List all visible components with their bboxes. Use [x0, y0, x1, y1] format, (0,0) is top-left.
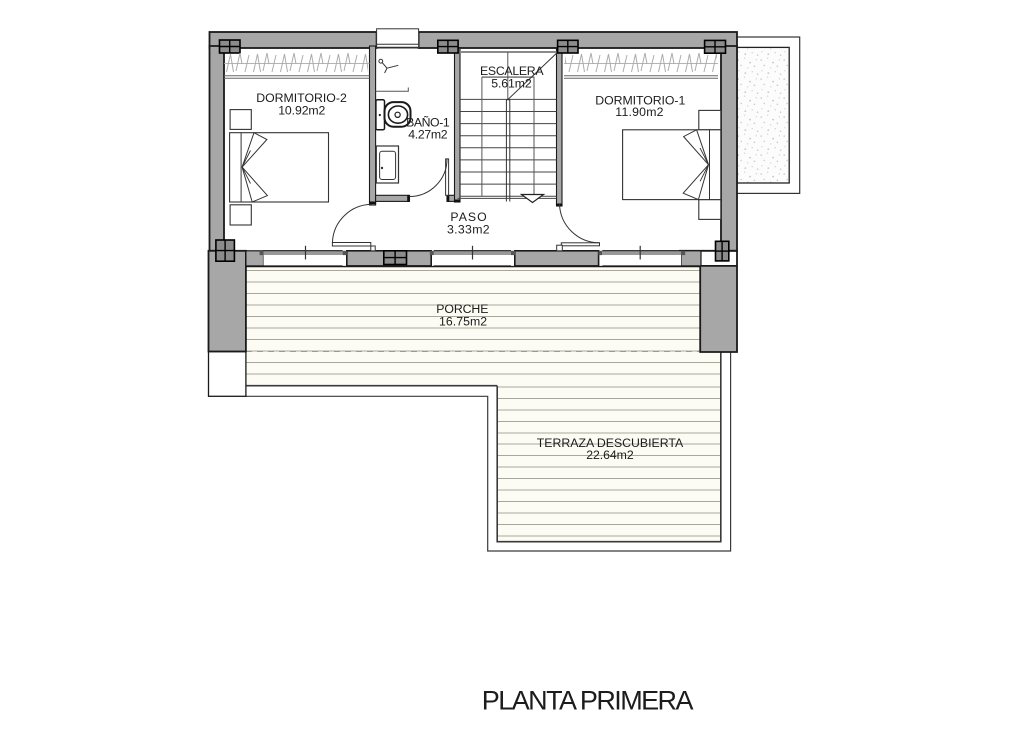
svg-text:11.90m2: 11.90m2 [615, 105, 663, 119]
svg-text:5.61m2: 5.61m2 [491, 77, 532, 91]
svg-text:22.64m2: 22.64m2 [586, 448, 634, 462]
svg-text:4.27m2: 4.27m2 [408, 128, 447, 142]
svg-text:16.75m2: 16.75m2 [439, 314, 487, 328]
svg-text:PLANTA PRIMERA: PLANTA PRIMERA [482, 685, 694, 715]
svg-text:10.92m2: 10.92m2 [278, 104, 325, 118]
svg-text:3.33m2: 3.33m2 [447, 223, 490, 237]
